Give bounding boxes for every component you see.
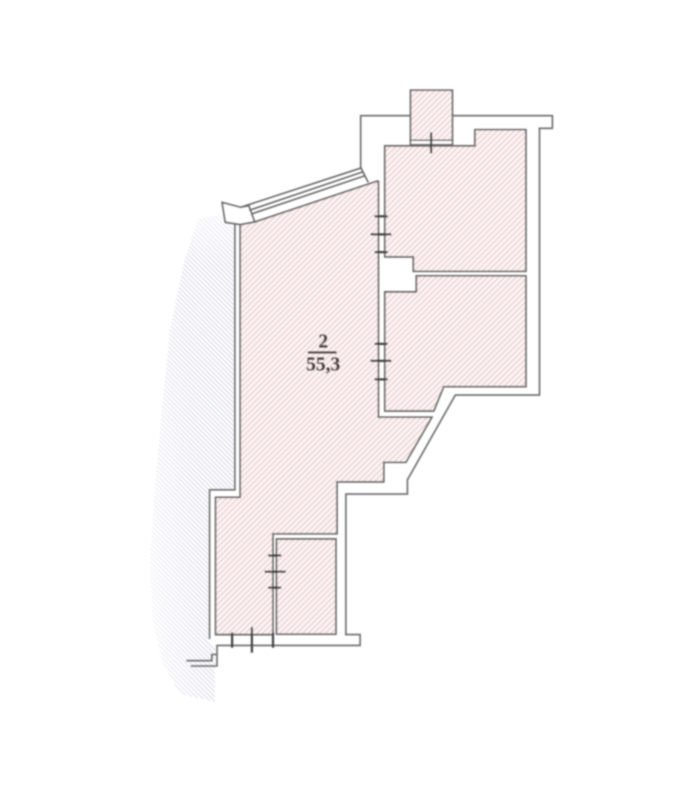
svg-text:2: 2	[318, 331, 328, 352]
svg-text:55,3: 55,3	[306, 355, 340, 376]
